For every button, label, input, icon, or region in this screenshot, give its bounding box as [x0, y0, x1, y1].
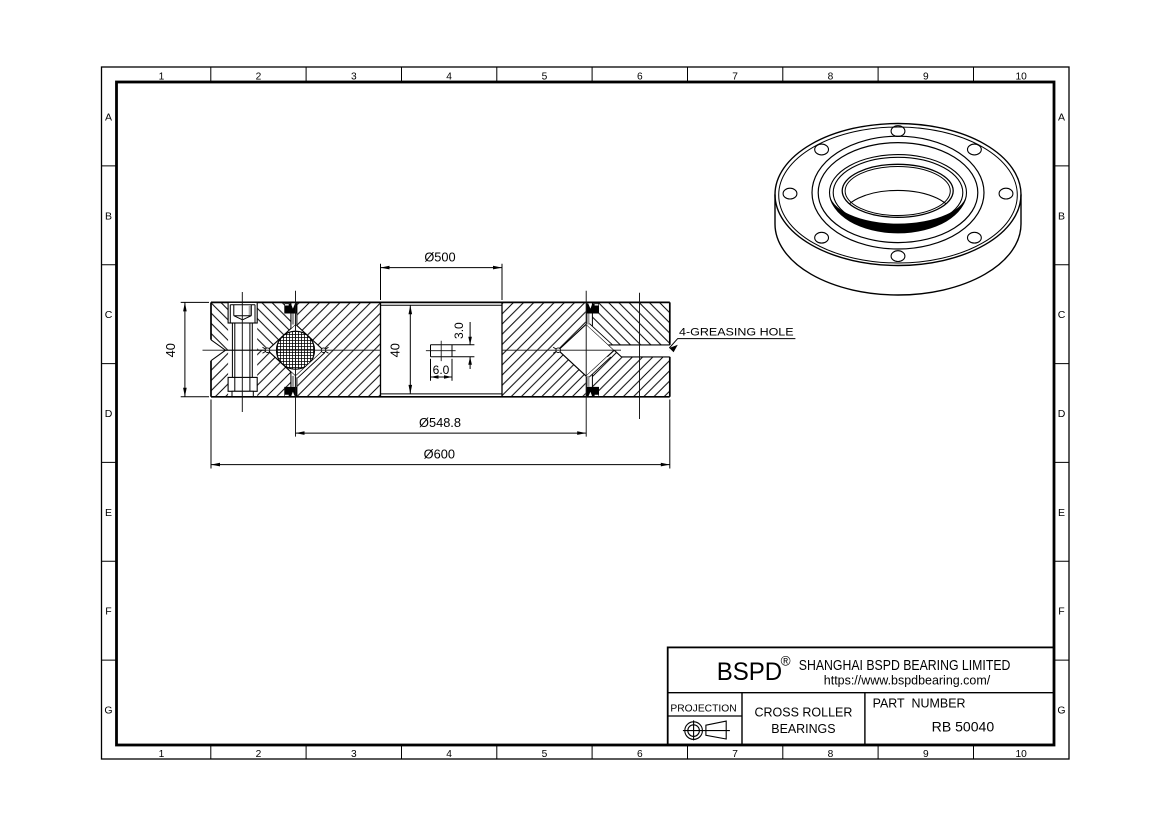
svg-text:Ø548.8: Ø548.8 — [419, 415, 461, 430]
svg-text:D: D — [105, 408, 113, 420]
svg-text:PART NUMBER: PART NUMBER — [873, 696, 966, 710]
svg-text:B: B — [1058, 210, 1065, 222]
svg-text:C: C — [105, 309, 113, 321]
svg-text:10: 10 — [1016, 71, 1028, 82]
svg-text:5: 5 — [542, 749, 548, 760]
svg-text:PROJECTION: PROJECTION — [670, 703, 736, 714]
svg-text:A: A — [105, 111, 112, 123]
svg-text:3: 3 — [351, 71, 357, 82]
svg-text:SHANGHAI BSPD BEARING LIMITED: SHANGHAI BSPD BEARING LIMITED — [799, 658, 1011, 674]
svg-text:G: G — [104, 705, 112, 717]
svg-text:6: 6 — [637, 749, 643, 760]
svg-text:BEARINGS: BEARINGS — [771, 721, 836, 736]
svg-text:3.0: 3.0 — [452, 322, 466, 339]
svg-text:®: ® — [781, 654, 791, 669]
svg-text:6: 6 — [637, 71, 643, 82]
svg-text:3: 3 — [351, 749, 357, 760]
svg-text:40: 40 — [163, 343, 178, 357]
svg-text:8: 8 — [828, 71, 834, 82]
svg-text:Ø500: Ø500 — [424, 249, 455, 264]
svg-text:10: 10 — [1016, 749, 1028, 760]
svg-text:2: 2 — [256, 749, 262, 760]
svg-text:A: A — [1058, 111, 1065, 123]
svg-text:E: E — [1058, 507, 1065, 519]
svg-text:40: 40 — [388, 343, 403, 357]
svg-text:B: B — [105, 210, 112, 222]
svg-text:1: 1 — [159, 749, 165, 760]
svg-text:C: C — [1058, 309, 1066, 321]
svg-text:BSPD: BSPD — [717, 658, 783, 686]
svg-text:Ø600: Ø600 — [424, 446, 455, 461]
svg-text:F: F — [1058, 606, 1064, 618]
svg-text:2: 2 — [256, 71, 262, 82]
svg-text:7: 7 — [732, 71, 738, 82]
svg-text:4-GREASING HOLE: 4-GREASING HOLE — [679, 326, 794, 338]
svg-text:9: 9 — [923, 749, 929, 760]
svg-text:1: 1 — [159, 71, 165, 82]
svg-text:D: D — [1058, 408, 1066, 420]
svg-text:7: 7 — [732, 749, 738, 760]
svg-text:5: 5 — [542, 71, 548, 82]
svg-text:CROSS ROLLER: CROSS ROLLER — [755, 705, 853, 720]
svg-text:RB 50040: RB 50040 — [932, 720, 995, 735]
svg-text:4: 4 — [446, 749, 452, 760]
svg-text:8: 8 — [828, 749, 834, 760]
svg-text:F: F — [105, 606, 111, 618]
svg-text:E: E — [105, 507, 112, 519]
svg-text:4: 4 — [446, 71, 452, 82]
svg-text:6.0: 6.0 — [433, 363, 450, 377]
svg-text:9: 9 — [923, 71, 929, 82]
svg-text:https://www.bspdbearing.com/: https://www.bspdbearing.com/ — [824, 674, 991, 688]
svg-text:G: G — [1057, 705, 1065, 717]
